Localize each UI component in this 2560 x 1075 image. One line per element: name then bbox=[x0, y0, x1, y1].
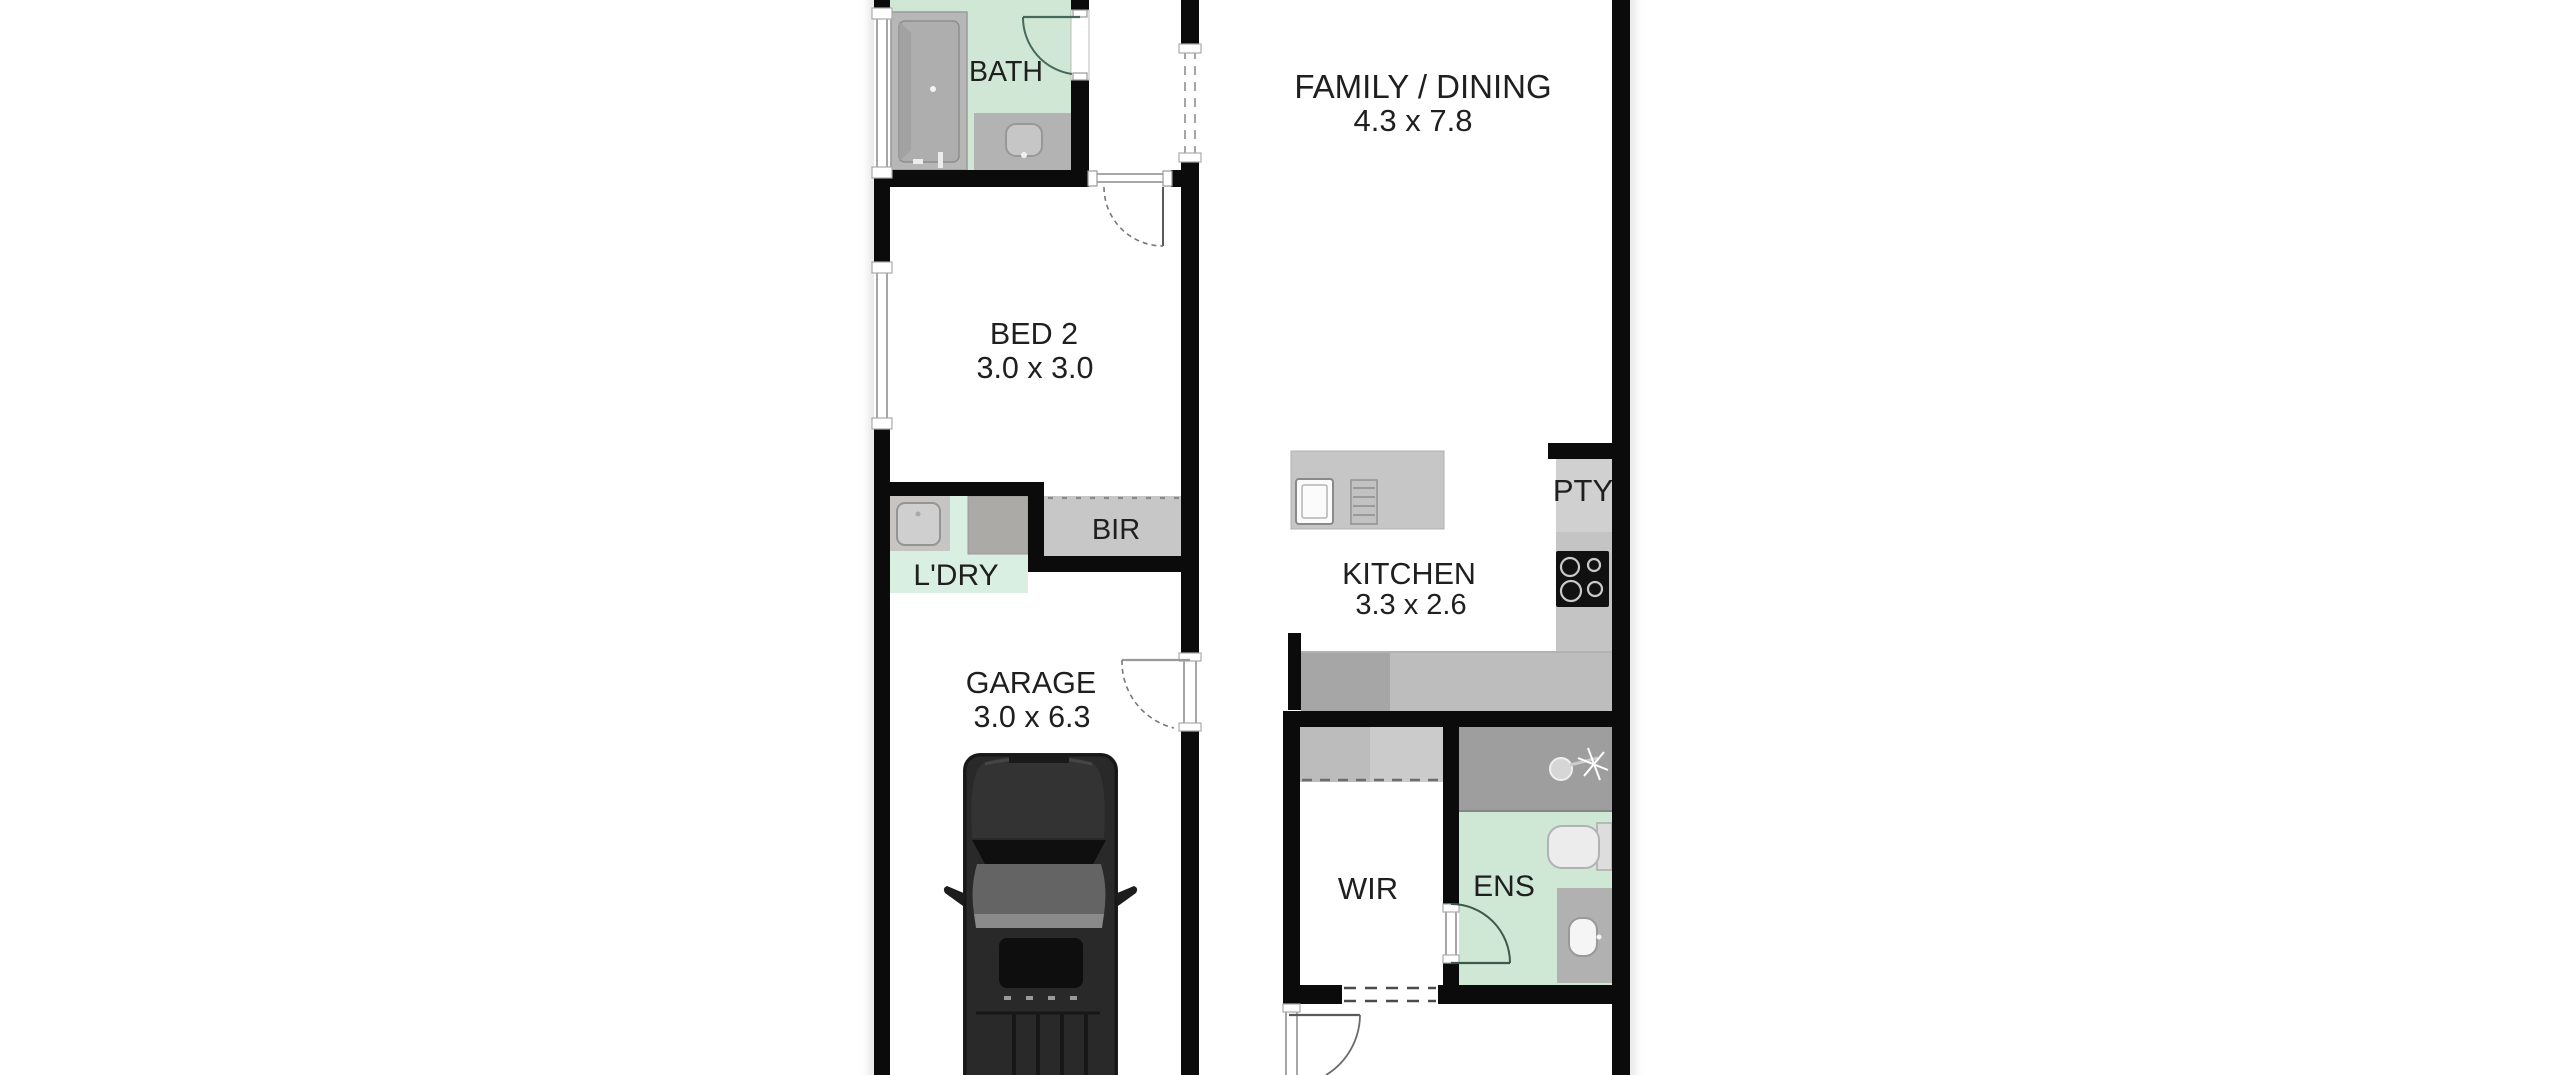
svg-text:4.3 x 7.8: 4.3 x 7.8 bbox=[1354, 103, 1473, 138]
svg-text:FAMILY / DINING: FAMILY / DINING bbox=[1294, 68, 1551, 105]
svg-text:3.3 x 2.6: 3.3 x 2.6 bbox=[1355, 589, 1466, 621]
svg-text:PTY: PTY bbox=[1553, 473, 1613, 508]
svg-text:BATH: BATH bbox=[969, 56, 1043, 88]
svg-text:BIR: BIR bbox=[1092, 514, 1140, 546]
svg-text:L'DRY: L'DRY bbox=[913, 559, 998, 592]
svg-text:KITCHEN: KITCHEN bbox=[1342, 557, 1476, 591]
svg-text:WIR: WIR bbox=[1338, 871, 1398, 906]
svg-text:GARAGE: GARAGE bbox=[966, 666, 1097, 700]
svg-text:3.0 x 3.0: 3.0 x 3.0 bbox=[977, 351, 1094, 385]
svg-text:ENS: ENS bbox=[1473, 870, 1535, 903]
svg-text:3.0 x 6.3: 3.0 x 6.3 bbox=[974, 700, 1091, 734]
svg-text:BED 2: BED 2 bbox=[990, 317, 1078, 351]
